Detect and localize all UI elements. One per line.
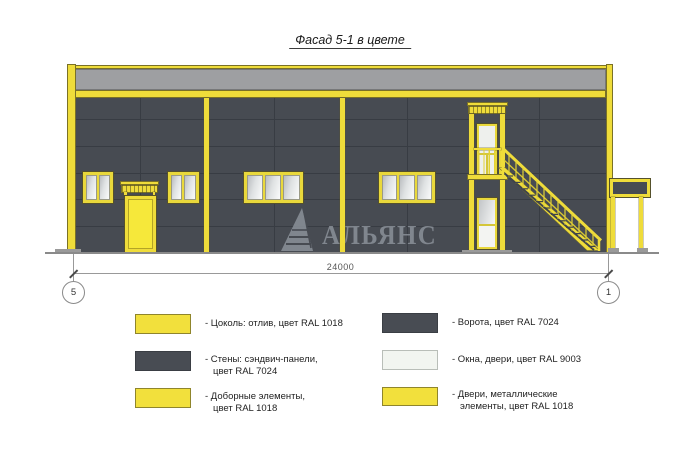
window bbox=[82, 171, 114, 204]
window-pane bbox=[171, 175, 182, 200]
legend-label-windows: - Окна, двери, цвет RAL 9003 bbox=[452, 354, 581, 366]
corner-column-left bbox=[67, 64, 76, 253]
axis-marker-5: 5 bbox=[62, 281, 85, 304]
logo-triangle-watermark bbox=[278, 206, 318, 254]
legend-swatch-trim bbox=[135, 388, 191, 408]
axis-label: 1 bbox=[606, 287, 611, 298]
legend-swatch-windows bbox=[382, 350, 438, 370]
legend-swatch-gates bbox=[382, 313, 438, 333]
stair-tower-post-left bbox=[469, 114, 474, 251]
legend-label-walls: - Стены: сэндвич-панели, цвет RAL 7024 bbox=[205, 354, 318, 378]
column-strip bbox=[204, 98, 209, 253]
column-strip bbox=[340, 98, 345, 253]
window-pane bbox=[265, 175, 281, 201]
window bbox=[243, 171, 304, 205]
drawing-sheet: Фасад 5-1 в цвете АЛЬЯНС bbox=[0, 0, 700, 474]
door-leaf bbox=[128, 199, 154, 249]
window-pane bbox=[399, 175, 414, 200]
window-pane bbox=[99, 175, 110, 200]
ground-line bbox=[45, 252, 659, 254]
legend-swatch-plinth bbox=[135, 314, 191, 334]
axis-label: 5 bbox=[71, 287, 76, 298]
dimension-value: 24000 bbox=[73, 262, 609, 272]
window-pane bbox=[382, 175, 397, 200]
window-pane bbox=[247, 175, 263, 201]
stair-tower-fascia bbox=[468, 106, 506, 114]
legend-swatch-walls bbox=[135, 351, 191, 371]
legend-label-gates: - Ворота, цвет RAL 7024 bbox=[452, 317, 559, 329]
axis-marker-1: 1 bbox=[597, 281, 620, 304]
window-pane bbox=[417, 175, 432, 200]
dimension-line bbox=[73, 273, 609, 274]
legend-label-trim: - Доборные элементы, цвет RAL 1018 bbox=[205, 391, 305, 415]
window-pane bbox=[86, 175, 97, 200]
window-pane bbox=[184, 175, 195, 200]
legend-label-doors: - Двери, металлические элементы, цвет RA… bbox=[452, 389, 573, 413]
entry-door bbox=[124, 195, 158, 253]
parapet-band bbox=[75, 69, 606, 91]
exterior-staircase bbox=[480, 130, 660, 260]
legend: - Цоколь: отлив, цвет RAL 1018 - Стены: … bbox=[0, 305, 700, 435]
legend-label-plinth: - Цоколь: отлив, цвет RAL 1018 bbox=[205, 318, 343, 330]
window-pane bbox=[283, 175, 299, 201]
legend-swatch-doors bbox=[382, 387, 438, 407]
window bbox=[167, 171, 200, 204]
window bbox=[378, 171, 436, 204]
